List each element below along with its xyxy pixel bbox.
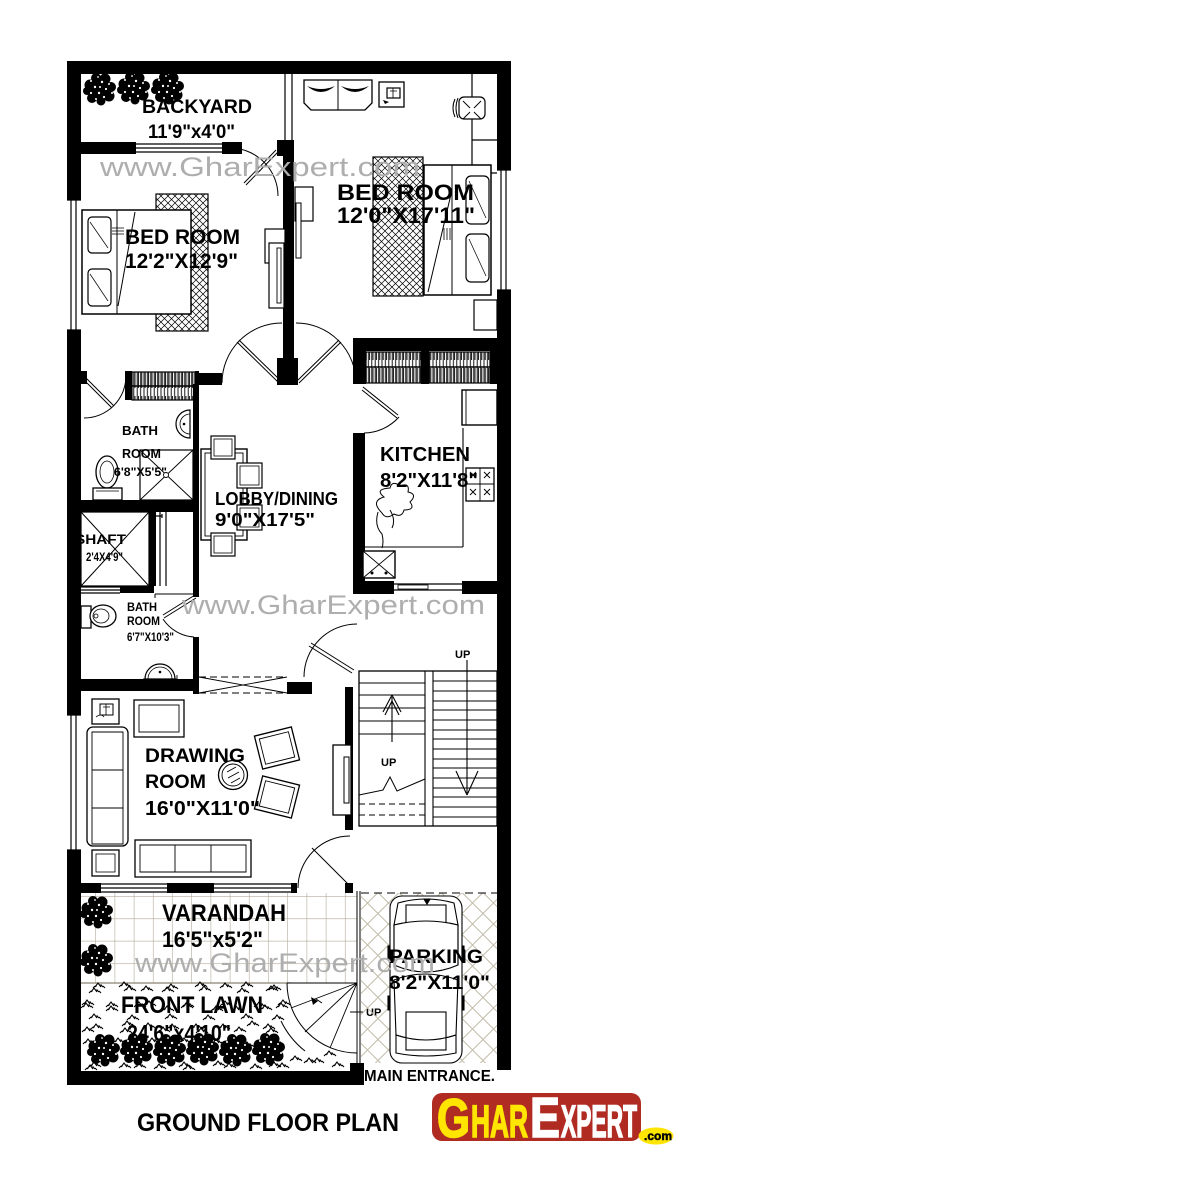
svg-text:ROOM: ROOM — [145, 772, 206, 793]
svg-text:BACKYARD: BACKYARD — [142, 97, 252, 118]
svg-text:LOBBY/DINING: LOBBY/DINING — [215, 489, 338, 509]
svg-text:6'8"X5'5": 6'8"X5'5" — [114, 465, 167, 479]
svg-text:BED ROOM: BED ROOM — [125, 226, 240, 249]
svg-text:www.GharExpert.com: www.GharExpert.com — [134, 948, 435, 978]
svg-text:12'0"X17'11": 12'0"X17'11" — [337, 203, 475, 228]
svg-text:ROOM: ROOM — [127, 614, 160, 628]
svg-text:BED ROOM: BED ROOM — [337, 180, 474, 205]
svg-text:FRONT LAWN: FRONT LAWN — [121, 992, 263, 1019]
svg-text:UP: UP — [381, 757, 396, 769]
svg-text:2'4X4'9": 2'4X4'9" — [86, 550, 123, 564]
svg-text:XPERT: XPERT — [561, 1096, 637, 1147]
svg-text:G: G — [437, 1087, 470, 1149]
svg-text:UP: UP — [455, 649, 470, 661]
svg-text:HAR: HAR — [471, 1096, 528, 1147]
svg-text:12'2"X12'9": 12'2"X12'9" — [125, 250, 238, 273]
svg-text:GROUND FLOOR PLAN: GROUND FLOOR PLAN — [137, 1109, 399, 1137]
svg-text:ROOM: ROOM — [122, 446, 161, 461]
svg-text:9'0"X17'5": 9'0"X17'5" — [215, 510, 315, 530]
svg-text:.com: .com — [644, 1129, 672, 1143]
svg-text:DRAWING: DRAWING — [145, 746, 245, 767]
svg-text:VARANDAH: VARANDAH — [162, 900, 286, 927]
svg-text:8'2"X11'8": 8'2"X11'8" — [380, 470, 478, 492]
svg-text:BATH: BATH — [122, 423, 158, 438]
svg-text:6'7"X10'3": 6'7"X10'3" — [127, 630, 174, 644]
svg-text:MAIN ENTRANCE.: MAIN ENTRANCE. — [364, 1068, 495, 1085]
svg-text:E: E — [530, 1086, 560, 1150]
svg-text:KITCHEN: KITCHEN — [380, 444, 470, 466]
svg-text:16'0"X11'0": 16'0"X11'0" — [145, 798, 260, 820]
svg-text:SHAFT: SHAFT — [75, 531, 126, 547]
svg-text:www.GharExpert.com: www.GharExpert.com — [99, 152, 420, 182]
svg-text:www.GharExpert.com: www.GharExpert.com — [181, 590, 485, 620]
svg-text:BATH: BATH — [127, 600, 157, 614]
svg-text:11'9"x4'0": 11'9"x4'0" — [148, 122, 235, 143]
